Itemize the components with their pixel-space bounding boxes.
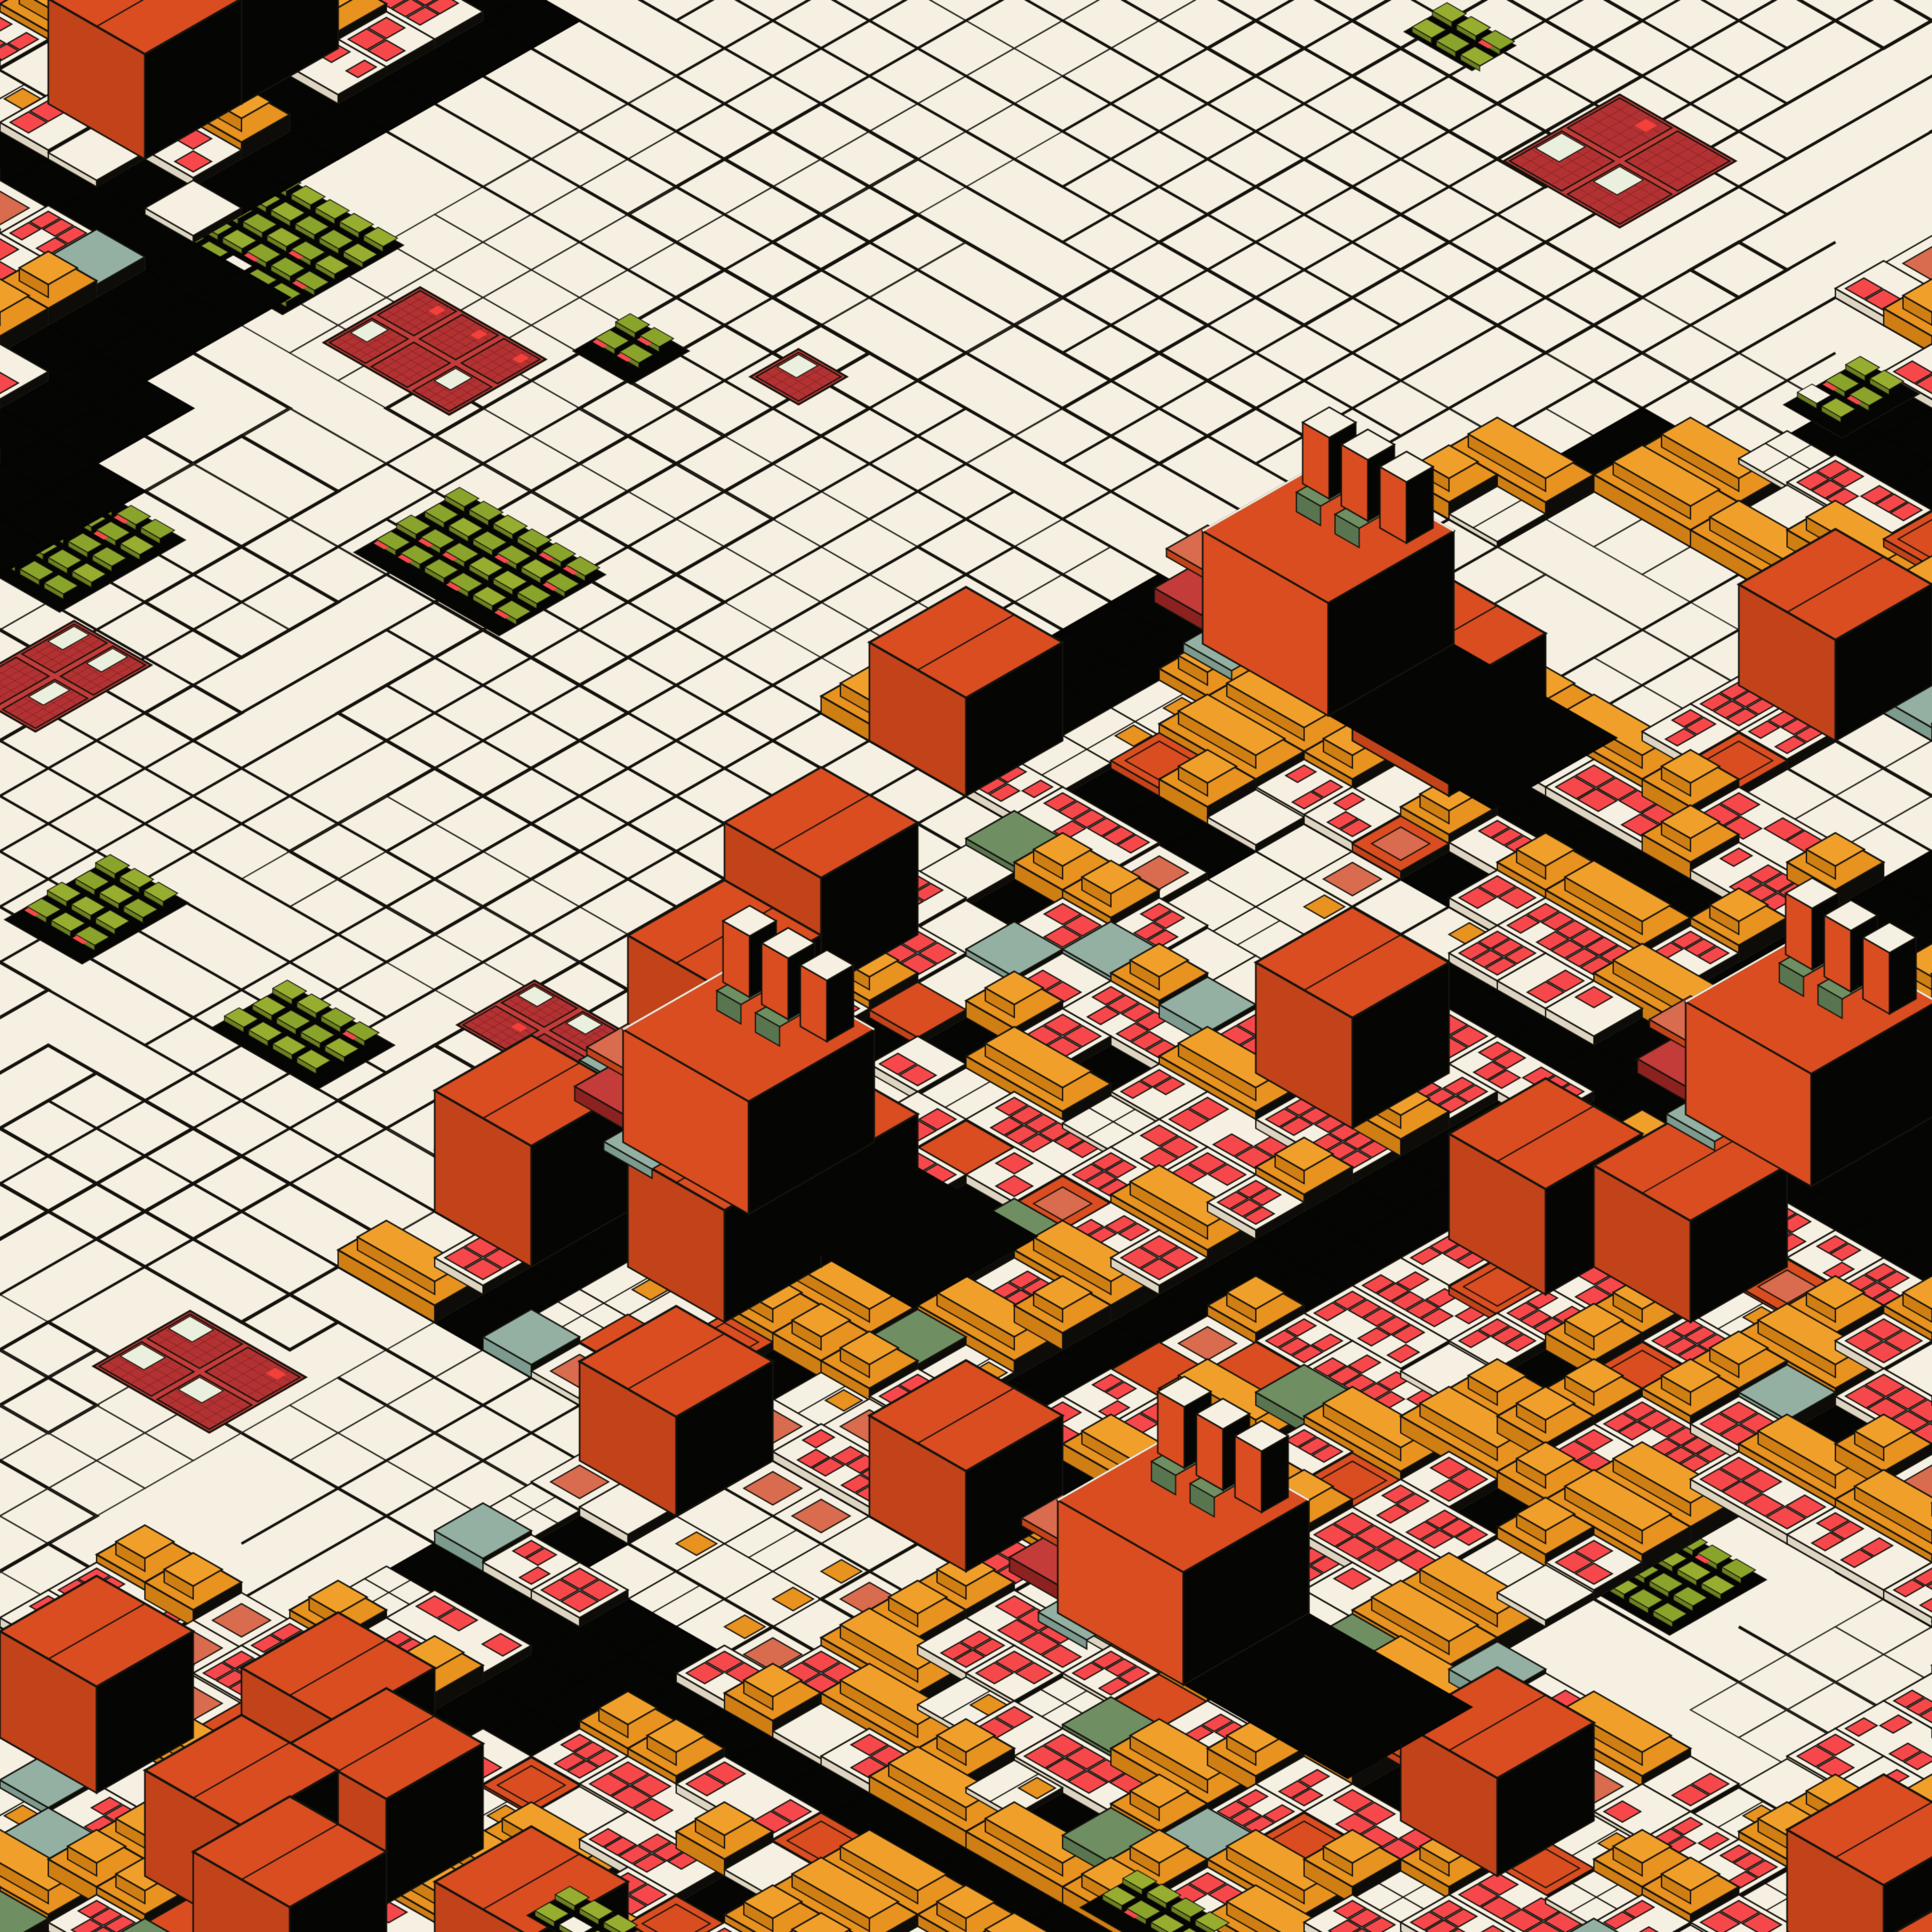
artwork-canvas — [0, 0, 1932, 1932]
generative-isometric-artwork — [0, 0, 1932, 1932]
